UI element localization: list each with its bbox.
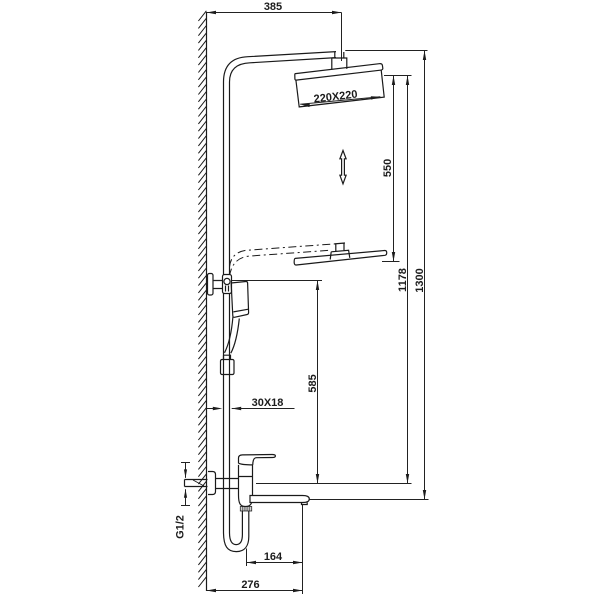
svg-text:385: 385 (264, 1, 282, 13)
svg-text:1178: 1178 (397, 268, 409, 292)
svg-text:164: 164 (264, 551, 283, 563)
svg-text:G1/2: G1/2 (175, 515, 187, 539)
svg-text:276: 276 (241, 579, 259, 591)
svg-text:550: 550 (382, 159, 394, 177)
svg-text:1300: 1300 (414, 268, 426, 292)
svg-text:585: 585 (307, 374, 319, 392)
svg-text:30X18: 30X18 (252, 397, 284, 409)
